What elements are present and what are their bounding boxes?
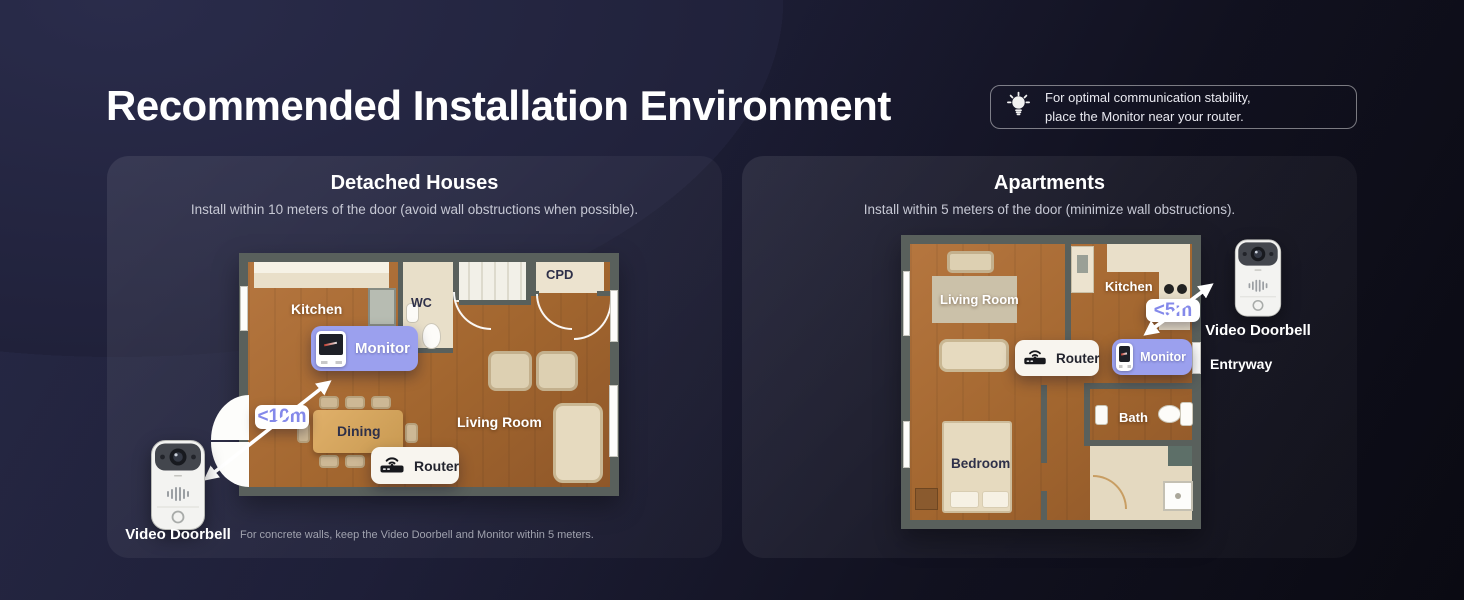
monitor-badge: Monitor — [1112, 339, 1192, 375]
tip-line-1: For optimal communication stability, — [1045, 88, 1251, 108]
video-doorbell-label: Video Doorbell — [115, 526, 241, 543]
detached-houses-heading: Detached Houses — [107, 172, 722, 195]
sofa — [553, 403, 603, 483]
dining-chair — [345, 455, 365, 468]
kitchen-sink-unit — [368, 288, 396, 326]
room-label-bath: Bath — [1119, 410, 1148, 425]
monitor-label: Monitor — [355, 340, 410, 357]
sofa — [947, 251, 994, 273]
bath-toilet-tank — [1180, 402, 1193, 426]
router-label: Router — [1056, 351, 1100, 366]
room-label-kitchen: Kitchen — [291, 301, 342, 317]
wall-segment — [1084, 383, 1090, 446]
window — [240, 286, 248, 331]
distance-badge: <10m — [255, 405, 309, 429]
window — [903, 421, 910, 468]
window — [903, 271, 910, 336]
apartments-panel: Apartments Install within 5 meters of th… — [742, 156, 1357, 558]
wc-toilet — [422, 323, 441, 349]
window — [610, 290, 618, 342]
tip-text: For optimal communication stability, pla… — [1045, 88, 1251, 127]
router-badge: Router — [1015, 340, 1099, 376]
entry-door-opening — [1192, 342, 1201, 374]
room-label-kitchen: Kitchen — [1105, 279, 1153, 294]
wall-segment — [1041, 491, 1047, 520]
bed-pillow — [982, 491, 1009, 508]
monitor-label: Monitor — [1140, 350, 1186, 364]
detached-houses-panel: Detached Houses Install within 10 meters… — [107, 156, 722, 558]
lightbulb-icon — [1005, 91, 1032, 123]
kitchen-counter-top — [254, 262, 389, 273]
bath-toilet — [1158, 405, 1181, 423]
sofa — [939, 339, 1009, 372]
wall-segment — [1041, 385, 1047, 463]
wall-segment — [597, 291, 610, 296]
room-label-living: Living Room — [457, 414, 542, 430]
detached-houses-subtitle: Install within 10 meters of the door (av… — [107, 202, 722, 217]
page-title: Recommended Installation Environment — [106, 82, 891, 130]
video-doorbell-label: Video Doorbell — [1192, 322, 1324, 339]
entry-closet — [1168, 446, 1192, 466]
room-label-cpd: CPD — [546, 267, 573, 282]
monitor-device-icon — [1116, 343, 1133, 371]
armchair — [488, 351, 532, 391]
stove-burner — [1164, 284, 1174, 294]
shower-drain — [1175, 493, 1181, 499]
window — [609, 385, 618, 457]
armchair — [536, 351, 578, 391]
room-label-dining: Dining — [337, 423, 381, 439]
room-label-bedroom: Bedroom — [951, 456, 1010, 471]
cabinet-inner — [1077, 255, 1088, 273]
entry-door-leaf — [211, 442, 249, 487]
dining-chair — [371, 396, 391, 409]
room-label-living: Living Room — [940, 292, 1019, 307]
router-icon — [1022, 345, 1048, 371]
bath-sink — [1095, 405, 1108, 425]
wall-segment — [1084, 383, 1192, 389]
entryway-label: Entryway — [1210, 356, 1272, 372]
room-label-wc: WC — [411, 296, 432, 310]
dining-chair — [345, 396, 365, 409]
kitchen-counter — [1107, 244, 1190, 272]
video-doorbell-device — [150, 439, 206, 531]
router-icon — [378, 452, 406, 479]
detached-house-floorplan: Kitchen WC CPD Living Room — [239, 253, 619, 496]
entry-door-leaf — [211, 395, 249, 440]
dining-chair — [405, 423, 418, 443]
router-label: Router — [414, 458, 459, 474]
monitor-device-icon — [316, 331, 346, 367]
installation-environment-infographic: Recommended Installation Environment For… — [0, 0, 1464, 600]
apartments-heading: Apartments — [742, 172, 1357, 195]
apartment-floorplan: Living Room Kitchen Bath — [901, 235, 1201, 529]
dining-chair — [319, 396, 339, 409]
monitor-badge: Monitor — [311, 326, 418, 371]
video-doorbell-device — [1234, 238, 1282, 318]
router-badge: Router — [371, 447, 459, 484]
tip-line-2: place the Monitor near your router. — [1045, 107, 1251, 127]
stove-burner — [1177, 284, 1187, 294]
dining-chair — [319, 455, 339, 468]
concrete-wall-note: For concrete walls, keep the Video Doorb… — [240, 529, 594, 541]
distance-badge: <5m — [1146, 299, 1200, 322]
nightstand — [915, 488, 938, 510]
tip-box: For optimal communication stability, pla… — [990, 85, 1357, 129]
apartments-subtitle: Install within 5 meters of the door (min… — [742, 202, 1357, 217]
bed-pillow — [950, 491, 979, 508]
